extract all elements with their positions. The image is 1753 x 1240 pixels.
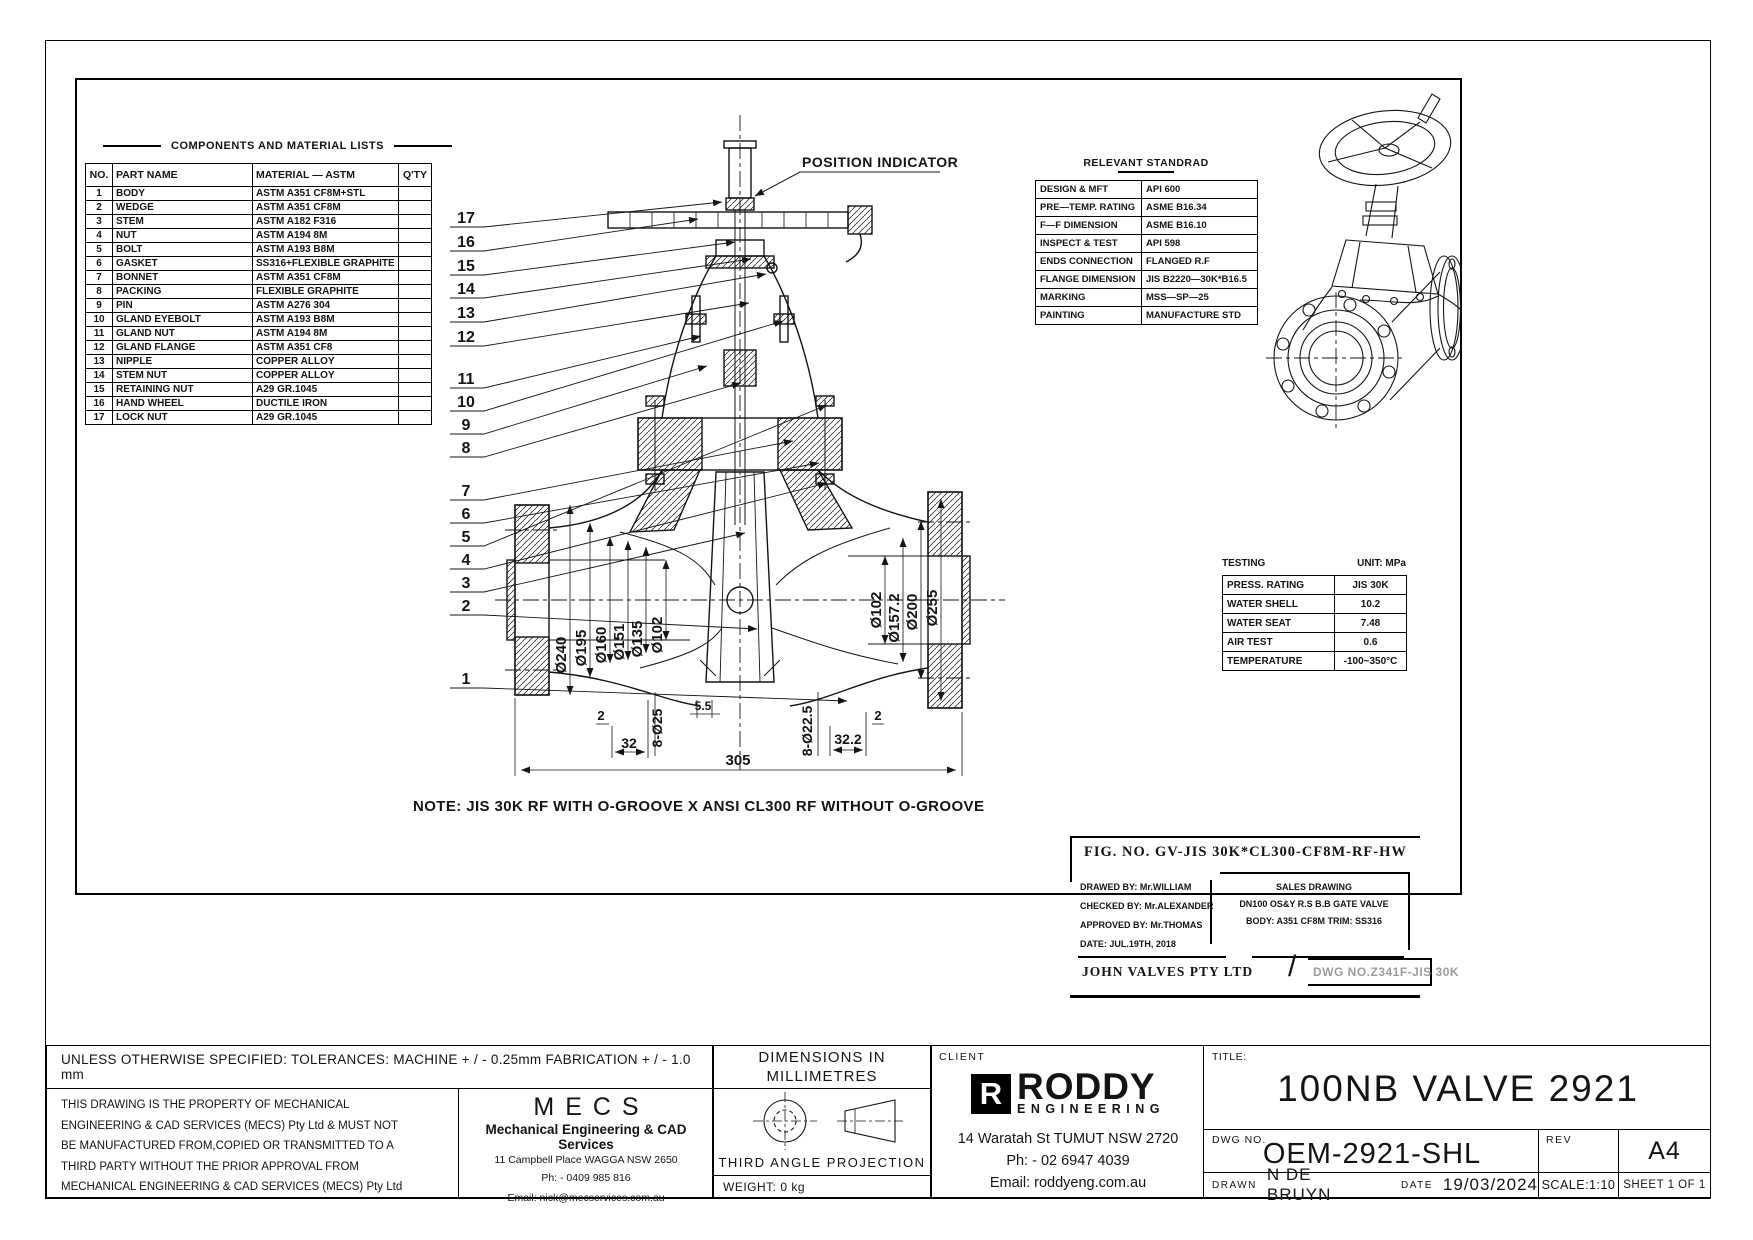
fig-approved-by: APPROVED BY: Mr.THOMAS bbox=[1080, 916, 1213, 935]
balloon: 8 bbox=[462, 440, 471, 457]
scale-cell: SCALE:1:10 bbox=[1538, 1172, 1619, 1198]
dim-label: Ø240 bbox=[553, 637, 570, 674]
balloon: 15 bbox=[457, 258, 475, 275]
balloon: 6 bbox=[462, 506, 471, 523]
fig-dwg-no: DWG NO.Z341F-JIS 30K bbox=[1313, 965, 1459, 979]
dim-label: Ø255 bbox=[924, 590, 941, 627]
property-notice-line: MECHANICAL ENGINEERING & CAD SERVICES (M… bbox=[61, 1177, 458, 1198]
dimension-labels: Ø240 Ø195 Ø160 Ø151 Ø135 Ø102 5.5 Ø102 Ø… bbox=[553, 590, 941, 769]
property-notice-line: BE MANUFACTURED FROM,COPIED OR TRANSMITT… bbox=[61, 1136, 458, 1157]
position-indicator-callout: POSITION INDICATOR bbox=[755, 154, 958, 196]
title-label: TITLE: bbox=[1212, 1051, 1247, 1063]
drawn-label: DRAWN bbox=[1212, 1180, 1257, 1191]
mecs-subtitle: Mechanical Engineering & CAD Services bbox=[459, 1122, 713, 1152]
dim-label: 32 bbox=[621, 735, 637, 751]
balloon: 5 bbox=[462, 529, 471, 546]
sales-body-trim: BODY: A351 CF8M TRIM: SS316 bbox=[1220, 913, 1408, 930]
position-indicator-label: POSITION INDICATOR bbox=[802, 154, 958, 170]
tolerance-cell: UNLESS OTHERWISE SPECIFIED: TOLERANCES: … bbox=[46, 1045, 714, 1089]
fig-line bbox=[1078, 956, 1226, 958]
tolerance-text: UNLESS OTHERWISE SPECIFIED: TOLERANCES: … bbox=[61, 1052, 713, 1082]
balloon: 1 bbox=[462, 671, 471, 688]
rev-label: REV bbox=[1546, 1134, 1572, 1146]
valve-isometric bbox=[1274, 94, 1462, 420]
dimensions-note-line1: DIMENSIONS IN bbox=[713, 1048, 931, 1067]
dim-label: Ø160 bbox=[593, 627, 610, 664]
fig-slash: / bbox=[1288, 950, 1296, 984]
balloon-numbers: 17 16 15 14 13 12 11 10 9 8 7 6 5 4 3 2 … bbox=[457, 210, 475, 688]
roddy-logo: R RODDY ENGINEERING bbox=[931, 1072, 1205, 1116]
balloon: 10 bbox=[457, 394, 475, 411]
balloon: 2 bbox=[462, 598, 471, 615]
sheet-size-cell: A4 bbox=[1618, 1129, 1711, 1173]
roddy-logo-name: RODDY bbox=[1017, 1072, 1165, 1102]
dimensions-note-cell: DIMENSIONS IN MILLIMETRES bbox=[712, 1045, 932, 1089]
property-notice-cell: THIS DRAWING IS THE PROPERTY OF MECHANIC… bbox=[46, 1088, 459, 1198]
mecs-phone: Ph: - 0409 985 816 bbox=[459, 1172, 713, 1184]
balloon: 12 bbox=[457, 329, 475, 346]
mecs-address: 11 Campbell Place WAGGA NSW 2650 bbox=[459, 1154, 713, 1166]
projection-cell: THIRD ANGLE PROJECTION bbox=[712, 1088, 932, 1176]
date-value: 19/03/2024 bbox=[1443, 1175, 1538, 1195]
weight-text: WEIGHT: 0 kg bbox=[723, 1180, 805, 1194]
fig-date: DATE: JUL.19TH, 2018 bbox=[1080, 935, 1213, 954]
valve-drawing: 17 16 15 14 13 12 11 10 9 8 7 6 5 4 3 2 … bbox=[75, 78, 1462, 895]
third-angle-projection-symbol bbox=[733, 1092, 911, 1150]
client-email: Email: roddyeng.com.au bbox=[931, 1172, 1205, 1194]
property-notice-line: ENGINEERING & CAD SERVICES (MECS) Pty Lt… bbox=[61, 1116, 458, 1137]
client-address: 14 Waratah St TUMUT NSW 2720 bbox=[931, 1128, 1205, 1150]
fig-checked-by: CHECKED BY: Mr.ALEXANDER bbox=[1080, 897, 1213, 916]
drawn-cell: DRAWN N DE BRUYN DATE 19/03/2024 bbox=[1203, 1172, 1539, 1198]
dim-label: 305 bbox=[725, 752, 750, 769]
mecs-cell: MECS Mechanical Engineering & CAD Servic… bbox=[458, 1088, 714, 1198]
dim-label: Ø157.2 bbox=[886, 593, 903, 642]
dim-label: 5.5 bbox=[695, 699, 712, 713]
drawing-sheet: COMPONENTS AND MATERIAL LISTS NO. PART N… bbox=[0, 0, 1753, 1240]
dim-label: 32.2 bbox=[834, 731, 861, 747]
dim-label: Ø151 bbox=[611, 624, 628, 661]
dim-label: Ø102 bbox=[868, 592, 885, 629]
balloon: 4 bbox=[462, 552, 471, 569]
dwg-no-cell: DWG NO. OEM-2921-SHL bbox=[1203, 1129, 1539, 1173]
balloon: 3 bbox=[462, 575, 471, 592]
dim-label: 2 bbox=[597, 708, 604, 723]
date-label: DATE bbox=[1401, 1180, 1433, 1191]
sales-valve-desc: DN100 OS&Y R.S B.B GATE VALVE bbox=[1220, 896, 1408, 913]
balloon: 16 bbox=[457, 234, 475, 251]
dwg-no-value: OEM-2921-SHL bbox=[1204, 1138, 1540, 1171]
client-phone: Ph: - 02 6947 4039 bbox=[931, 1150, 1205, 1172]
mecs-email: Email: nick@mecservices.com.au bbox=[459, 1192, 713, 1204]
dim-label: 2 bbox=[874, 708, 881, 723]
scale-value: SCALE:1:10 bbox=[1542, 1178, 1616, 1192]
dim-label: Ø200 bbox=[904, 594, 921, 631]
projection-label: THIRD ANGLE PROJECTION bbox=[713, 1155, 931, 1170]
sheet-count-cell: SHEET 1 OF 1 bbox=[1618, 1172, 1711, 1198]
weight-cell: WEIGHT: 0 kg bbox=[712, 1175, 932, 1198]
rev-cell: REV bbox=[1538, 1129, 1619, 1173]
dim-label: 8-Ø22.5 bbox=[799, 705, 815, 756]
roddy-logo-sub: ENGINEERING bbox=[1017, 1102, 1165, 1116]
sheet-count: SHEET 1 OF 1 bbox=[1623, 1179, 1705, 1191]
fig-company: JOHN VALVES PTY LTD bbox=[1082, 964, 1253, 980]
dimensions-note-line2: MILLIMETRES bbox=[713, 1067, 931, 1086]
dim-label: 8-Ø25 bbox=[649, 708, 665, 747]
client-cell: CLIENT R RODDY ENGINEERING 14 Waratah St… bbox=[930, 1045, 1204, 1198]
balloon: 9 bbox=[462, 417, 471, 434]
roddy-logo-mark: R bbox=[971, 1074, 1011, 1114]
title-cell: TITLE: 100NB VALVE 2921 bbox=[1203, 1045, 1711, 1130]
property-notice-line: THIS DRAWING IS THE PROPERTY OF MECHANIC… bbox=[61, 1095, 458, 1116]
dim-label: Ø195 bbox=[573, 630, 590, 667]
balloon: 17 bbox=[457, 210, 475, 227]
balloon: 14 bbox=[457, 281, 475, 298]
dim-label: Ø135 bbox=[629, 621, 646, 658]
balloon: 7 bbox=[462, 483, 471, 500]
client-label: CLIENT bbox=[939, 1051, 985, 1063]
drawn-value: N DE BRUYN bbox=[1267, 1165, 1365, 1205]
property-notice-line: THIRD PARTY WITHOUT THE PRIOR APPROVAL F… bbox=[61, 1157, 458, 1178]
balloon: 11 bbox=[458, 371, 475, 388]
balloon: 13 bbox=[457, 305, 475, 322]
drawing-title: 100NB VALVE 2921 bbox=[1204, 1068, 1712, 1110]
dim-label: Ø102 bbox=[649, 617, 666, 654]
sheet-size: A4 bbox=[1648, 1137, 1681, 1166]
mecs-logo: MECS bbox=[459, 1093, 713, 1122]
